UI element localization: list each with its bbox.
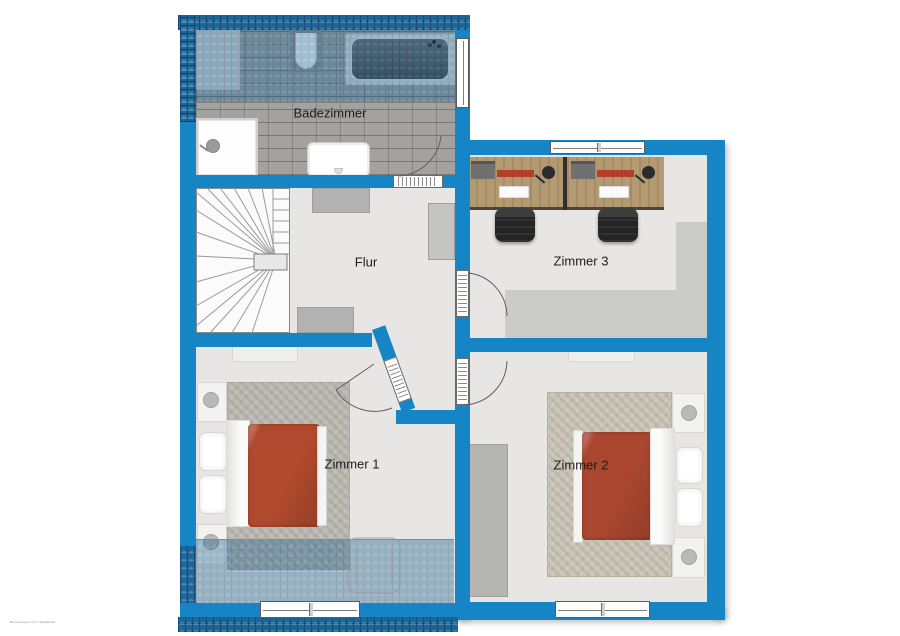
door-arc-zimmer2 xyxy=(464,361,507,405)
door-arc-zimmer1 xyxy=(336,364,392,411)
fine-print-watermark: Bemessung nicht maßstäblich xyxy=(10,620,55,624)
room-label-zimmer3: Zimmer 3 xyxy=(554,254,609,269)
door-arc-badezimmer xyxy=(398,136,441,176)
floor-plan: Badezimmer Flur Zimmer 3 Zimmer 1 Zimmer… xyxy=(0,0,900,636)
door-arcs-overlay xyxy=(0,0,900,636)
room-label-flur: Flur xyxy=(355,255,377,270)
room-label-zimmer2: Zimmer 2 xyxy=(554,458,609,473)
room-label-zimmer1: Zimmer 1 xyxy=(325,457,380,472)
door-arc-zimmer3 xyxy=(469,273,507,316)
room-label-badezimmer: Badezimmer xyxy=(294,106,367,121)
